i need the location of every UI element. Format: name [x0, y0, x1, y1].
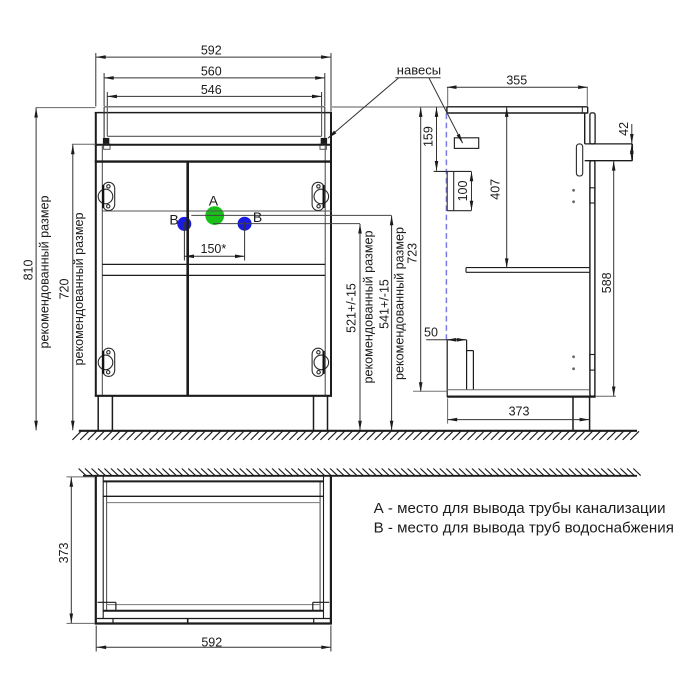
svg-text:А - место для вывода трубы кан: А - место для вывода трубы канализации — [374, 500, 666, 517]
svg-text:рекомендованный размер: рекомендованный размер — [72, 213, 86, 366]
svg-text:100: 100 — [456, 181, 470, 202]
svg-text:159: 159 — [422, 126, 436, 147]
svg-text:373: 373 — [57, 543, 71, 564]
svg-text:373: 373 — [509, 404, 530, 418]
svg-text:рекомендованный размер: рекомендованный размер — [392, 227, 406, 380]
svg-text:546: 546 — [201, 83, 222, 97]
svg-text:720: 720 — [57, 279, 71, 300]
svg-text:B: B — [253, 209, 262, 225]
svg-text:810: 810 — [22, 260, 36, 281]
svg-text:150*: 150* — [201, 242, 227, 256]
svg-text:521+/-15: 521+/-15 — [345, 283, 359, 333]
svg-text:рекомендованный размер: рекомендованный размер — [37, 196, 51, 349]
svg-text:42: 42 — [617, 122, 631, 136]
svg-text:355: 355 — [506, 74, 527, 88]
svg-text:50: 50 — [424, 325, 438, 339]
svg-text:В - место для вывода труб водо: В - место для вывода труб водоснабжения — [374, 520, 674, 537]
svg-text:541+/-15: 541+/-15 — [377, 279, 391, 329]
svg-text:723: 723 — [406, 243, 420, 264]
svg-text:592: 592 — [201, 635, 222, 649]
svg-text:407: 407 — [489, 179, 503, 200]
svg-text:A: A — [209, 193, 219, 209]
svg-text:B: B — [169, 212, 178, 228]
svg-text:рекомендованный размер: рекомендованный размер — [361, 231, 375, 384]
svg-text:588: 588 — [600, 272, 614, 293]
svg-text:592: 592 — [201, 44, 222, 58]
svg-text:560: 560 — [201, 64, 222, 78]
svg-text:навесы: навесы — [397, 63, 441, 78]
